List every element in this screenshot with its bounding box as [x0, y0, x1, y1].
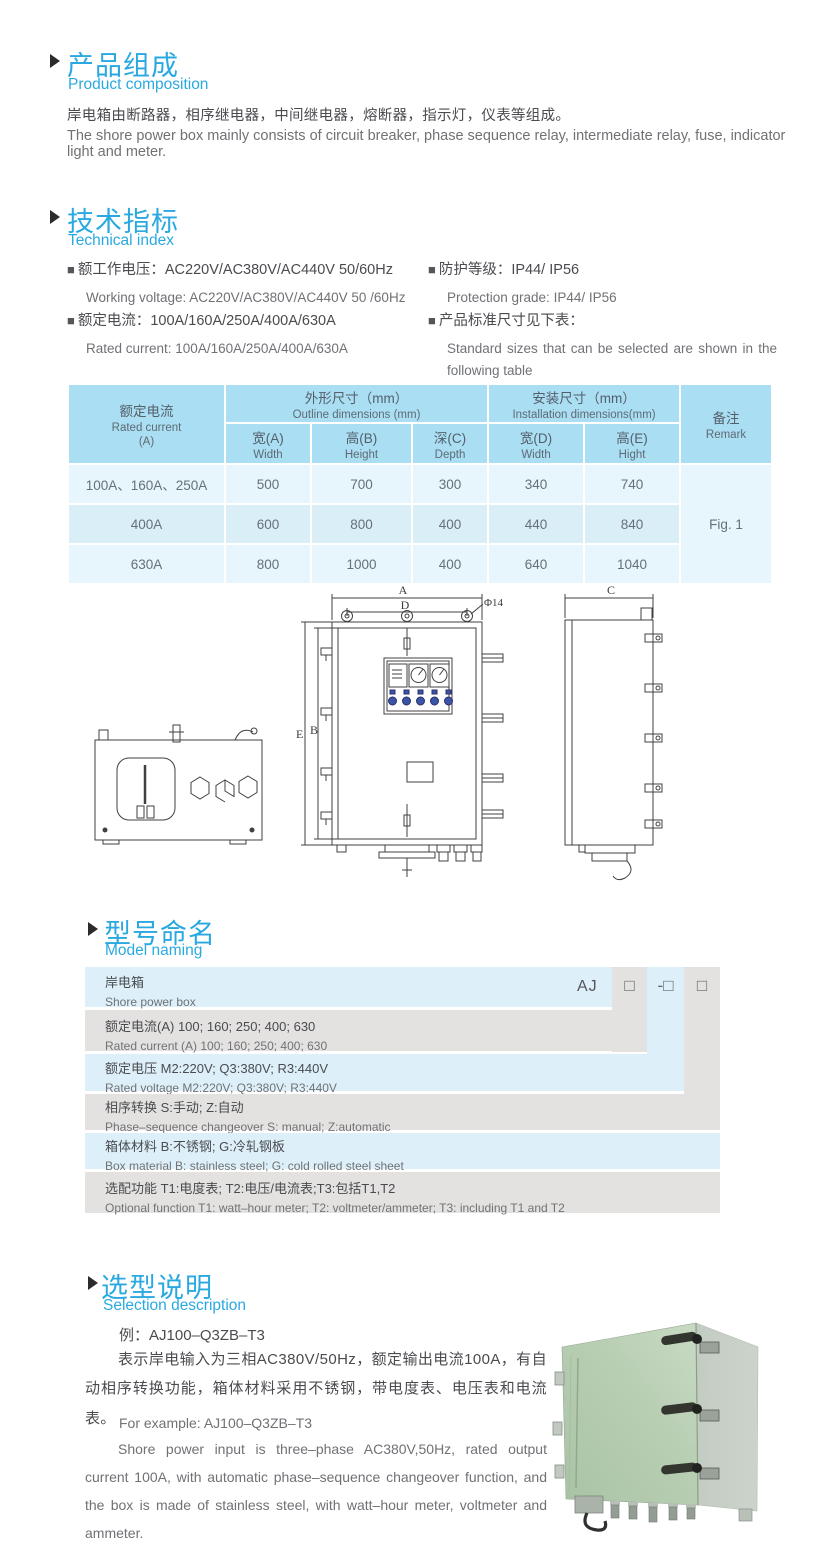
cell-current: 100A、160A、250A	[69, 465, 224, 503]
cell-width: 600	[226, 505, 310, 543]
tech-item-current-cn: 额定电流：100A/160A/250A/400A/630A	[78, 313, 336, 329]
tech-item-voltage-en: Working voltage: AC220V/AC380V/AC440V 50…	[86, 287, 427, 309]
model-slot1: □	[620, 976, 639, 996]
hinges	[553, 1372, 564, 1478]
cell-current: 630A	[69, 545, 224, 583]
th-height-b: 高(B)Height	[312, 424, 411, 463]
tech-item-sizes: ■产品标准尺寸见下表： Standard sizes that can be s…	[428, 309, 776, 383]
dim-label-phi: Φ14	[484, 597, 504, 609]
model-prefix: AJ	[577, 978, 598, 996]
cell-width: 800	[226, 545, 310, 583]
catalog-page: { "page": { "bg": "#ffffff", "accent": "…	[0, 0, 830, 1568]
selection-example-en: For example: AJ100–Q3ZB–T3	[119, 1415, 312, 1431]
th-hight-e: 高(E)Hight	[585, 424, 679, 463]
cell-install-height: 840	[585, 505, 679, 543]
dimension-table: 额定电流 Rated current (A) 外形尺寸（mm） Outline …	[67, 383, 773, 585]
tech-item-voltage: ■额工作电压：AC220V/AC380V/AC440V 50/60Hz Work…	[67, 258, 427, 309]
naming-row-optional-function: 选配功能 T1:电度表; T2:电压/电流表;T3:包括T1,T2 Option…	[85, 1172, 720, 1213]
cell-height: 1000	[312, 545, 411, 583]
section-title-composition-en: Product composition	[68, 76, 208, 94]
th-outline-dimensions: 外形尺寸（mm） Outline dimensions (mm)	[226, 385, 487, 422]
cell-install-width: 340	[489, 465, 583, 503]
dim-label-c: C	[607, 583, 615, 597]
box-front-face	[562, 1323, 698, 1505]
tech-item-protection-cn: 防护等级：IP44/ IP56	[439, 262, 579, 278]
product-photo	[545, 1298, 807, 1560]
th-depth-c: 深(C)Depth	[413, 424, 487, 463]
cell-depth: 400	[413, 505, 487, 543]
tech-item-protection: ■防护等级：IP44/ IP56 Protection grade: IP44/…	[428, 258, 773, 309]
th-width-a: 宽(A)Width	[226, 424, 310, 463]
cell-height: 800	[312, 505, 411, 543]
dim-label-a: A	[399, 583, 408, 597]
cell-depth: 400	[413, 545, 487, 583]
drain-tab	[739, 1509, 752, 1521]
technical-drawing: A D Φ14 E B C	[85, 582, 705, 892]
selection-body-en: Shore power input is three–phase AC380V,…	[85, 1435, 547, 1547]
section-marker-icon	[88, 1276, 98, 1290]
cell-remark: Fig. 1	[681, 465, 771, 583]
naming-row-rated-voltage: 额定电压 M2:220V; Q3:380V; R3:440V Rated vol…	[85, 1054, 684, 1091]
cell-install-height: 740	[585, 465, 679, 503]
selection-example-cn: 例：AJ100–Q3ZB–T3	[119, 1324, 265, 1345]
cell-current: 400A	[69, 505, 224, 543]
section-title-naming-en: Model naming	[105, 942, 202, 960]
section-title-technical-en: Technical index	[68, 232, 174, 250]
th-width-d: 宽(D)Width	[489, 424, 583, 463]
naming-row-shore-power-box: 岸电箱 Shore power box	[85, 967, 612, 1007]
model-slot2: -□	[651, 976, 680, 996]
tech-item-sizes-en: Standard sizes that can be selected are …	[447, 338, 777, 383]
tech-item-protection-en: Protection grade: IP44/ IP56	[447, 287, 773, 309]
section-marker-icon	[50, 54, 60, 68]
table-row: 630A 800 1000 400 640 1040	[69, 545, 771, 583]
model-slot3: □	[684, 976, 720, 996]
section-title-selection-en: Selection description	[103, 1297, 246, 1315]
dim-label-d: D	[401, 598, 410, 612]
cell-height: 700	[312, 465, 411, 503]
th-installation-dimensions: 安装尺寸（mm） Installation dimensions(mm)	[489, 385, 679, 422]
naming-row-phase-sequence: 相序转换 S:手动; Z:自动 Phase–sequence changeove…	[85, 1094, 720, 1130]
cell-install-height: 1040	[585, 545, 679, 583]
composition-text-en: The shore power box mainly consists of c…	[67, 128, 787, 160]
bullet-square-icon: ■	[67, 313, 75, 328]
hook	[585, 1513, 606, 1530]
dim-label-e: E	[296, 727, 303, 741]
bullet-square-icon: ■	[67, 262, 75, 277]
cell-install-width: 440	[489, 505, 583, 543]
cell-width: 500	[226, 465, 310, 503]
th-rated-current: 额定电流 Rated current (A)	[69, 385, 224, 463]
tech-item-current: ■额定电流：100A/160A/250A/400A/630A Rated cur…	[67, 309, 427, 360]
table-row: 100A、160A、250A 500 700 300 340 740 Fig. …	[69, 465, 771, 503]
section-marker-icon	[88, 922, 98, 936]
table-row: 400A 600 800 400 440 840	[69, 505, 771, 543]
tech-item-sizes-cn: 产品标准尺寸见下表：	[439, 313, 584, 329]
tech-item-current-en: Rated current: 100A/160A/250A/400A/630A	[86, 338, 427, 360]
cell-depth: 300	[413, 465, 487, 503]
naming-row-rated-current: 额定电流(A) 100; 160; 250; 400; 630 Rated cu…	[85, 1010, 647, 1051]
bottom-bracket	[575, 1496, 603, 1513]
composition-text-cn: 岸电箱由断路器，相序继电器，中间继电器，熔断器，指示灯，仪表等组成。	[67, 104, 767, 125]
section-marker-icon	[50, 210, 60, 224]
th-remark: 备注 Remark	[681, 385, 771, 463]
naming-row-box-material: 箱体材料 B:不锈钢; G:冷轧钢板 Box material B: stain…	[85, 1133, 720, 1169]
tech-item-voltage-cn: 额工作电压：AC220V/AC380V/AC440V 50/60Hz	[78, 262, 393, 278]
bullet-square-icon: ■	[428, 313, 436, 328]
bullet-square-icon: ■	[428, 262, 436, 277]
dim-label-b: B	[310, 723, 318, 737]
cell-install-width: 640	[489, 545, 583, 583]
